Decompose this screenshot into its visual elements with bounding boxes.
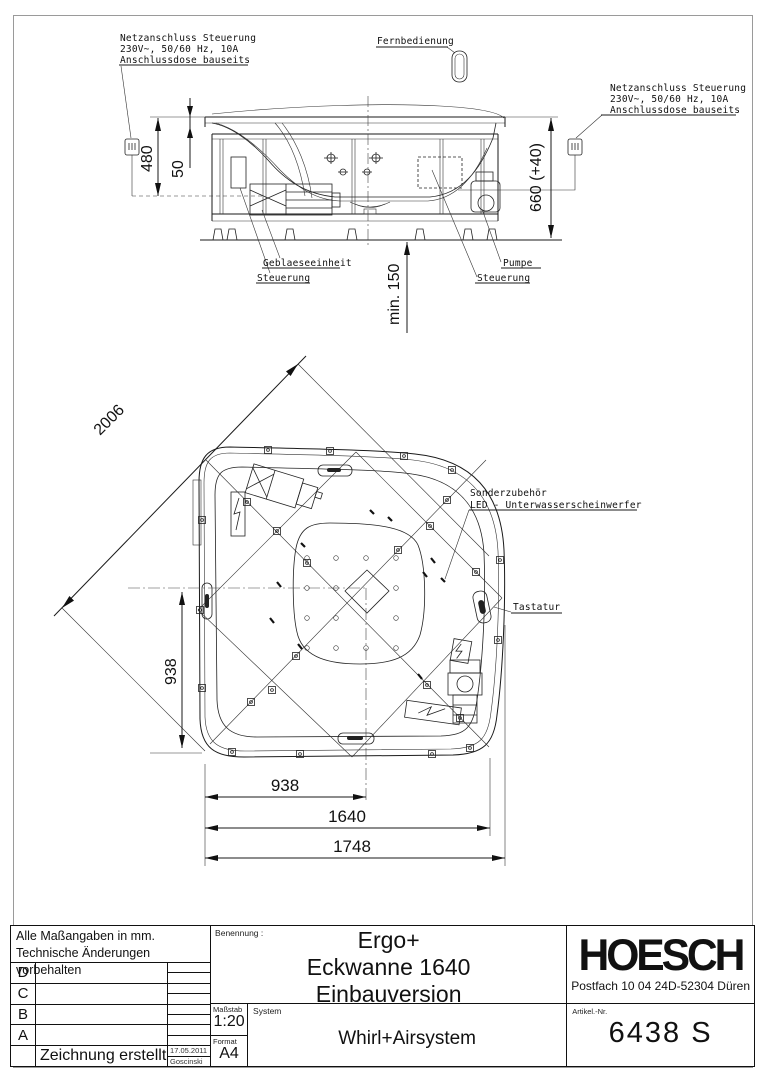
revision-desc (36, 984, 168, 1004)
massstab-cell: Maßstab 1:20 (211, 1004, 247, 1036)
revision-date-cell (168, 1005, 210, 1025)
revision-letter: C (11, 984, 36, 1004)
revision-letter: D (11, 963, 36, 983)
revision-desc (36, 1005, 168, 1025)
artikel-value: 6438 S (567, 1017, 754, 1050)
artikel-cell: Artikel.-Nr. 6438 S (567, 1004, 754, 1066)
format-value: A4 (211, 1045, 247, 1063)
scale-format-system: Maßstab 1:20 Format A4 System Whirl+Airs… (211, 1004, 566, 1066)
scale-format-col: Maßstab 1:20 Format A4 (211, 1004, 248, 1066)
brand-cell: HOESCH Postfach 10 04 24 D-52304 Düren (567, 926, 754, 1004)
revision-desc (36, 963, 168, 983)
revision-desc (36, 1025, 168, 1045)
format-cell: Format A4 (211, 1036, 247, 1067)
benennung-cell: Benennung : Ergo+ Eckwanne 1640 Einbauve… (211, 926, 566, 1004)
brand-address: Postfach 10 04 24 D-52304 Düren (567, 979, 754, 993)
created-spacer (11, 1046, 36, 1066)
created-label: Zeichnung erstellt (36, 1046, 168, 1066)
address-city: D-52304 Düren (668, 979, 750, 993)
system-label: System (253, 1006, 281, 1016)
massstab-label: Maßstab (213, 1005, 242, 1014)
note-line1: Alle Maßangaben in mm. (16, 928, 210, 945)
drawing-title-line2: Eckwanne 1640 (211, 955, 566, 980)
revision-date-cell (168, 963, 210, 983)
revision-row-a: A (11, 1025, 210, 1046)
title-block-left: Alle Maßangaben in mm. Technische Änderu… (11, 926, 211, 1066)
created-by: Goscinski (168, 1057, 210, 1066)
system-cell: System Whirl+Airsystem (248, 1004, 566, 1066)
sheet-border (13, 15, 753, 1068)
revision-row-b: B (11, 1005, 210, 1026)
created-row: Zeichnung erstellt 17.05.2011 Goscinski (11, 1046, 210, 1066)
address-postfach: Postfach 10 04 24 (571, 979, 668, 993)
notes: Alle Maßangaben in mm. Technische Änderu… (11, 926, 210, 963)
created-meta: 17.05.2011 Goscinski (168, 1046, 210, 1066)
drawing-title-line1: Ergo+ (211, 928, 566, 953)
massstab-value: 1:20 (211, 1013, 247, 1031)
revision-letter: B (11, 1005, 36, 1025)
created-date: 17.05.2011 (168, 1046, 210, 1056)
system-value: Whirl+Airsystem (248, 1028, 566, 1050)
brand-logo: HOESCH (563, 931, 757, 979)
title-block-middle: Benennung : Ergo+ Eckwanne 1640 Einbauve… (211, 926, 567, 1066)
revision-row-d: D (11, 963, 210, 984)
artikel-label: Artikel.-Nr. (572, 1007, 607, 1016)
revision-letter: A (11, 1025, 36, 1045)
revision-row-c: C (11, 984, 210, 1005)
revision-date-cell (168, 984, 210, 1004)
format-label: Format (213, 1037, 237, 1046)
title-block-right: HOESCH Postfach 10 04 24 D-52304 Düren A… (567, 926, 754, 1066)
benennung-label: Benennung : (215, 928, 263, 938)
revision-date-cell (168, 1025, 210, 1045)
title-block: Alle Maßangaben in mm. Technische Änderu… (10, 925, 755, 1067)
